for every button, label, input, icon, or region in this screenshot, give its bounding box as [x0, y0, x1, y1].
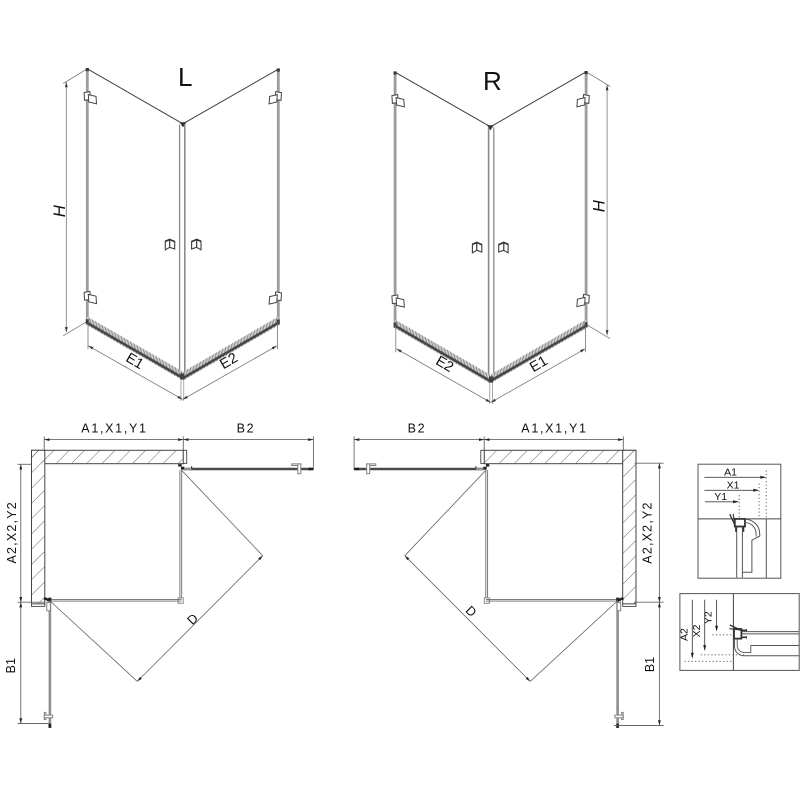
svg-text:B2: B2	[408, 422, 427, 436]
svg-text:Y2: Y2	[702, 611, 714, 624]
svg-text:B2: B2	[237, 422, 256, 436]
svg-text:A2: A2	[679, 628, 691, 641]
svg-text:H: H	[590, 199, 609, 212]
svg-text:B1: B1	[4, 658, 18, 673]
svg-text:A2,X2,Y2: A2,X2,Y2	[640, 501, 654, 563]
svg-text:Y1: Y1	[714, 491, 727, 503]
svg-text:X2: X2	[691, 624, 703, 637]
svg-text:R: R	[483, 66, 502, 96]
svg-text:X1: X1	[727, 480, 740, 492]
svg-text:L: L	[178, 62, 192, 92]
svg-text:A1,X1,Y1: A1,X1,Y1	[521, 422, 587, 436]
svg-text:H: H	[50, 204, 69, 217]
svg-text:A1,X1,Y1: A1,X1,Y1	[81, 422, 147, 436]
svg-text:A1: A1	[724, 467, 737, 479]
svg-text:B1: B1	[643, 657, 657, 672]
svg-text:A2,X2,Y2: A2,X2,Y2	[5, 501, 19, 563]
